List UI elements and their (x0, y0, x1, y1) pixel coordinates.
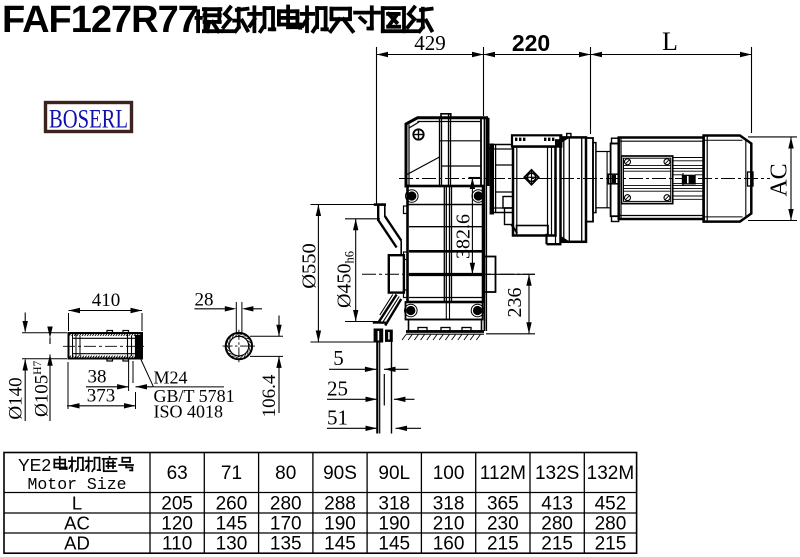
svg-text:YE2: YE2 (18, 455, 51, 475)
svg-text:160: 160 (433, 534, 465, 555)
svg-text:120: 120 (161, 514, 193, 535)
svg-text:145: 145 (378, 534, 410, 555)
svg-text:BOSERL: BOSERL (49, 105, 128, 134)
svg-text:145: 145 (216, 514, 248, 535)
svg-text:220: 220 (512, 30, 550, 56)
svg-text:38: 38 (88, 367, 107, 388)
svg-text:90S: 90S (323, 463, 357, 484)
svg-text:ISO 4018: ISO 4018 (154, 402, 224, 422)
svg-text:215: 215 (541, 534, 573, 555)
svg-text:190: 190 (324, 514, 356, 535)
svg-text:236: 236 (504, 288, 526, 318)
svg-text:365: 365 (487, 494, 519, 515)
svg-text:280: 280 (541, 514, 573, 535)
svg-text:260: 260 (216, 494, 248, 515)
svg-text:190: 190 (378, 514, 410, 535)
svg-text:452: 452 (595, 494, 627, 515)
svg-text:FAF127R77: FAF127R77 (2, 0, 198, 41)
svg-text:112M: 112M (480, 463, 526, 484)
svg-text:145: 145 (324, 534, 356, 555)
svg-text:130: 130 (216, 534, 248, 555)
svg-text:210: 210 (433, 514, 465, 535)
svg-text:M24: M24 (154, 368, 188, 388)
svg-text:AD: AD (64, 533, 90, 554)
svg-text:280: 280 (595, 514, 627, 535)
svg-text:L: L (72, 493, 82, 514)
svg-text:373: 373 (87, 386, 116, 407)
svg-text:Ø140: Ø140 (6, 377, 27, 419)
svg-text:318: 318 (378, 494, 410, 515)
svg-text:280: 280 (270, 494, 302, 515)
svg-text:L: L (662, 27, 678, 56)
svg-text:110: 110 (162, 534, 192, 555)
svg-text:51: 51 (327, 406, 348, 430)
svg-text:215: 215 (487, 534, 519, 555)
svg-text:AC: AC (767, 163, 793, 196)
svg-text:5: 5 (333, 346, 344, 370)
svg-text:AC: AC (64, 513, 90, 534)
svg-text:135: 135 (270, 534, 302, 555)
svg-text:170: 170 (270, 514, 302, 535)
svg-text:429: 429 (414, 31, 446, 55)
svg-text:28: 28 (195, 290, 214, 311)
svg-text:71: 71 (221, 463, 242, 484)
svg-text:230: 230 (487, 514, 519, 535)
svg-text:288: 288 (324, 494, 356, 515)
svg-text:205: 205 (161, 494, 193, 515)
svg-text:410: 410 (92, 290, 121, 311)
svg-text:Ø105H7: Ø105H7 (32, 360, 53, 417)
svg-text:382.6: 382.6 (453, 214, 475, 259)
svg-text:318: 318 (433, 494, 465, 515)
svg-text:80: 80 (275, 463, 296, 484)
svg-text:63: 63 (167, 463, 188, 484)
svg-text:106.4: 106.4 (259, 374, 280, 417)
svg-text:215: 215 (595, 534, 627, 555)
svg-text:132S: 132S (535, 463, 579, 484)
svg-text:Ø550: Ø550 (299, 243, 321, 289)
svg-text:132M: 132M (587, 463, 635, 484)
svg-text:100: 100 (433, 463, 465, 484)
svg-text:413: 413 (541, 494, 573, 515)
svg-text:90L: 90L (378, 463, 410, 484)
svg-text:Ø450h6: Ø450h6 (334, 251, 357, 308)
svg-text:Motor Size: Motor Size (27, 475, 126, 494)
svg-text:25: 25 (327, 377, 348, 401)
